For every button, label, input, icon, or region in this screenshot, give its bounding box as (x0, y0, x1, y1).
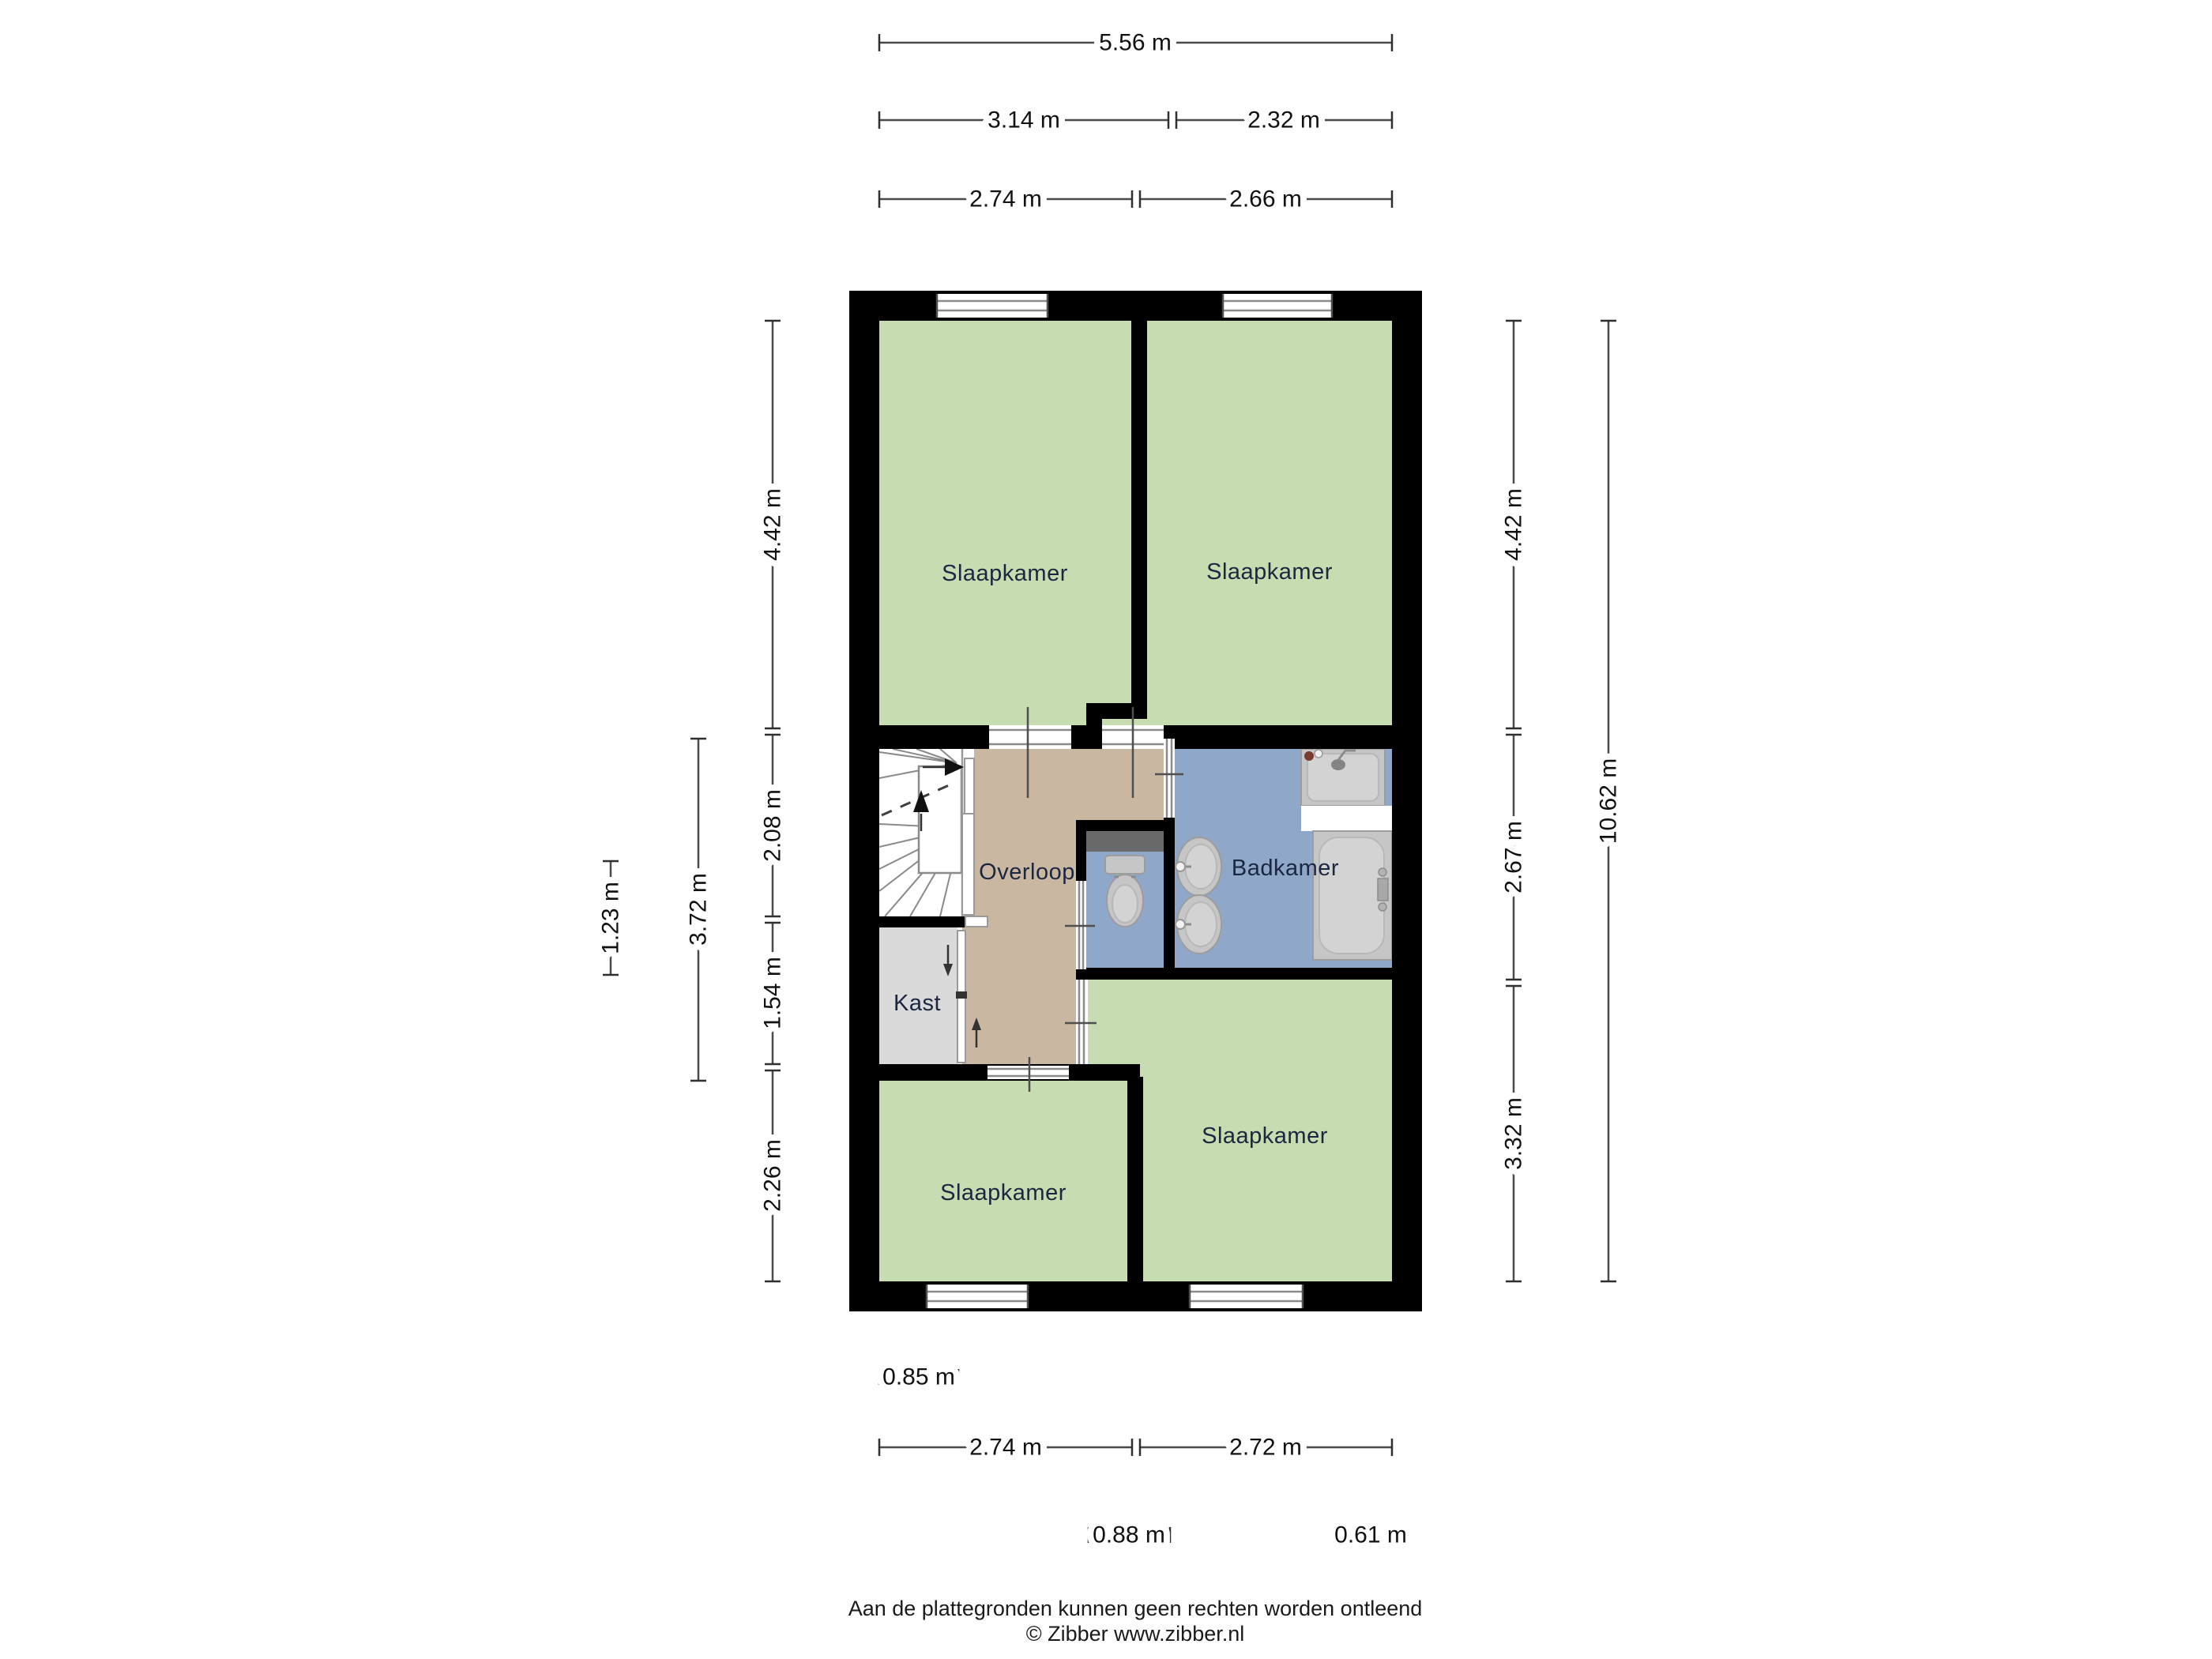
svg-text:5.56 m: 5.56 m (1099, 30, 1172, 56)
door-closet (956, 931, 967, 1063)
svg-text:10.62 m: 10.62 m (1596, 758, 1622, 844)
svg-text:0.61 m: 0.61 m (1334, 1522, 1407, 1548)
label-bedroom-top-left: Slaapkamer (942, 561, 1068, 586)
svg-text:0.85 m: 0.85 m (882, 1364, 955, 1390)
svg-text:2.66 m: 2.66 m (1229, 186, 1302, 213)
label-closet: Kast (893, 991, 941, 1016)
bedroom-bottom-right-floor-strip (1088, 980, 1140, 1064)
window-bottom-right (1190, 1285, 1303, 1308)
svg-text:2.26 m: 2.26 m (760, 1139, 786, 1212)
wall-exterior-left (849, 291, 879, 1311)
label-landing: Overloop (979, 860, 1075, 885)
dim-bottom-085: 0.85 m (879, 1364, 958, 1390)
svg-text:2.67 m: 2.67 m (1501, 821, 1527, 893)
svg-text:1.23 m: 1.23 m (598, 882, 624, 954)
svg-text:2.08 m: 2.08 m (760, 789, 786, 862)
wall-toilet-left (1076, 820, 1086, 881)
label-bathroom: Badkamer (1232, 856, 1339, 881)
svg-text:0.88 m: 0.88 m (1093, 1522, 1165, 1548)
wall-top-bedrooms-divider (1131, 321, 1147, 703)
svg-text:2.74 m: 2.74 m (969, 186, 1042, 213)
wall-toilet-top (1076, 820, 1171, 831)
bathtub-icon (1313, 831, 1392, 960)
toilet-icon (1105, 856, 1145, 927)
stair-inner-rect (919, 766, 961, 873)
label-bedroom-bottom-right: Slaapkamer (1202, 1123, 1328, 1149)
wall-exterior-top (849, 291, 1422, 321)
shower-icon (1301, 741, 1385, 806)
svg-text:3.14 m: 3.14 m (987, 107, 1060, 134)
svg-text:3.32 m: 3.32 m (1501, 1097, 1527, 1170)
footer-disclaimer: Aan de plattegronden kunnen geen rechten… (848, 1597, 1423, 1620)
svg-text:4.42 m: 4.42 m (760, 488, 786, 561)
bedroom-top-left-floor (879, 321, 1131, 749)
wall-bottom-bedrooms-divider (1127, 1077, 1143, 1281)
toilet-shelf (1085, 831, 1164, 852)
label-bedroom-bottom-left: Slaapkamer (940, 1180, 1066, 1206)
shower-tub-gap (1301, 806, 1392, 831)
window-top-left (937, 294, 1048, 318)
window-top-right (1223, 294, 1332, 318)
svg-text:2.32 m: 2.32 m (1247, 107, 1320, 134)
wall-exterior-right (1392, 291, 1422, 1311)
svg-text:2.72 m: 2.72 m (1229, 1435, 1302, 1461)
wall-stairs-bottom (849, 916, 974, 927)
wall-toilet-right (1164, 831, 1175, 980)
floorplan-canvas: Slaapkamer Slaapkamer Overloop Badkamer … (0, 0, 2212, 1659)
window-bottom-left (927, 1285, 1028, 1308)
svg-text:1.54 m: 1.54 m (760, 957, 786, 1029)
stair-door-leaf-vertical (962, 814, 974, 915)
footer-copyright: © Zibber www.zibber.nl (1026, 1622, 1245, 1646)
stair-door-leaf-horizontal (965, 916, 987, 927)
svg-text:3.72 m: 3.72 m (686, 873, 712, 946)
label-bedroom-top-right: Slaapkamer (1206, 559, 1333, 585)
svg-text:4.42 m: 4.42 m (1501, 488, 1527, 561)
svg-text:2.74 m: 2.74 m (969, 1435, 1042, 1461)
wall-bathroom-bottom (1076, 968, 1392, 980)
stair-door-leaf-upper (965, 758, 974, 814)
